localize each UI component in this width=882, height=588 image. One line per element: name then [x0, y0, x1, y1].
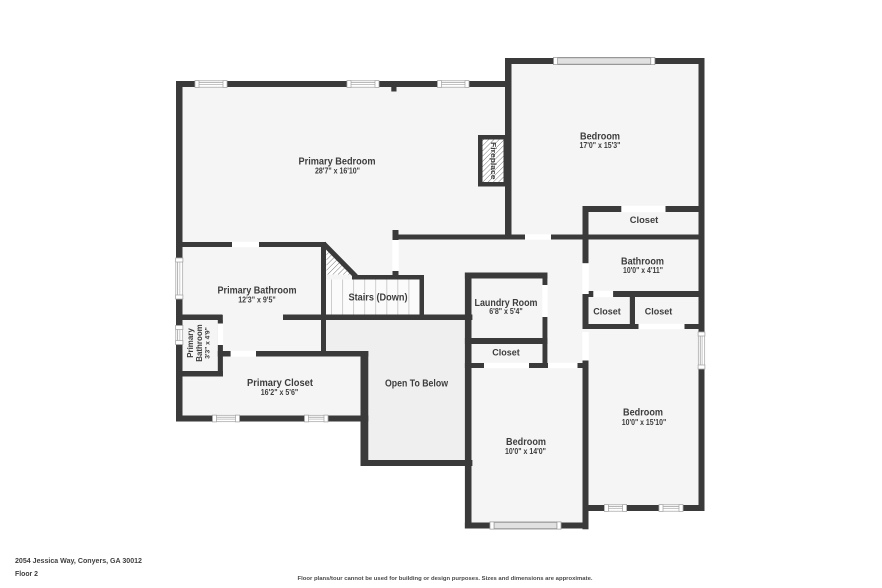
svg-text:17'0" x 15'3": 17'0" x 15'3" — [580, 141, 621, 150]
svg-text:Closet: Closet — [645, 307, 673, 317]
svg-text:Bathroom: Bathroom — [195, 324, 204, 362]
svg-text:6'8" x 5'4": 6'8" x 5'4" — [489, 307, 523, 316]
svg-text:Open To Below: Open To Below — [385, 379, 449, 390]
svg-text:Floor plans/tour cannot be use: Floor plans/tour cannot be used for buil… — [298, 576, 593, 582]
svg-text:Closet: Closet — [593, 307, 621, 317]
svg-text:10'0" x 15'10": 10'0" x 15'10" — [622, 418, 667, 427]
svg-text:Floor 2: Floor 2 — [15, 571, 38, 578]
svg-text:12'3" x 9'5": 12'3" x 9'5" — [238, 295, 276, 304]
svg-text:Closet: Closet — [630, 215, 659, 225]
svg-text:Stairs (Down): Stairs (Down) — [349, 293, 408, 304]
svg-text:Closet: Closet — [492, 348, 520, 358]
svg-text:Fireplace: Fireplace — [489, 142, 498, 180]
svg-text:2054 Jessica Way, Conyers, GA: 2054 Jessica Way, Conyers, GA 30012 — [15, 558, 142, 565]
svg-text:28'7" x 16'10": 28'7" x 16'10" — [315, 166, 360, 175]
svg-text:10'0" x 4'11": 10'0" x 4'11" — [623, 266, 663, 275]
svg-text:16'2" x 5'6": 16'2" x 5'6" — [261, 388, 299, 397]
svg-text:10'0" x 14'0": 10'0" x 14'0" — [505, 447, 546, 456]
svg-text:3'3" x 4'9": 3'3" x 4'9" — [204, 327, 211, 359]
svg-text:Primary: Primary — [186, 328, 195, 358]
